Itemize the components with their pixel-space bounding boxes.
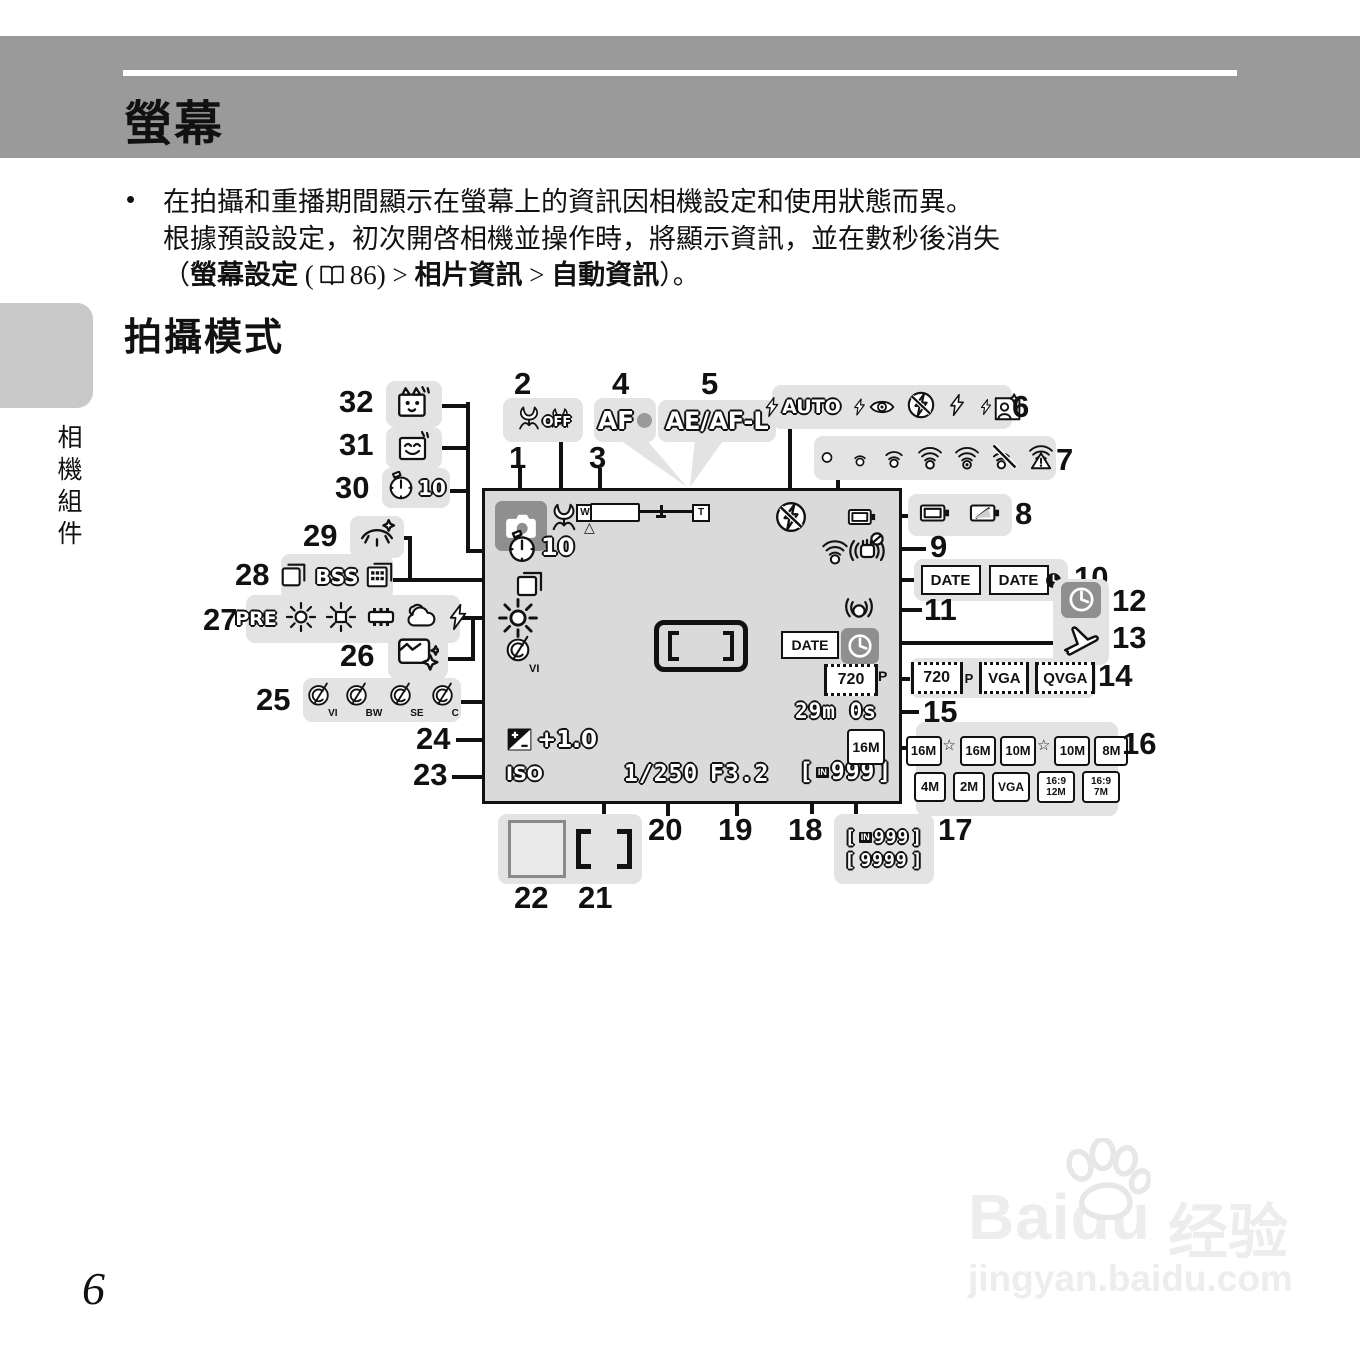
callout-28: 28 (235, 557, 269, 593)
line-30-32 (466, 402, 470, 553)
movie-qvga-icon: QVGA (1035, 662, 1095, 694)
shutter-speed-value: 1/250 (624, 761, 698, 787)
focus-area-brackets-icon (576, 829, 632, 869)
callout-3: 3 (589, 440, 606, 476)
line-32 (440, 404, 466, 408)
page-number: 6 (82, 1262, 105, 1315)
callout-5: 5 (701, 366, 718, 402)
callout-box-image-sizes: 16M☆ 16M 10M☆ 10M 8M 4M 2M VGA 16:9 12M … (916, 722, 1118, 816)
size-169-7m-icon: 16:9 7M (1082, 771, 1120, 803)
callout-21: 21 (578, 880, 612, 916)
eyefi-level1-icon (848, 442, 872, 475)
self-timer-icon (386, 471, 416, 506)
movie-vga-icon: VGA (979, 662, 1029, 694)
callout-box-clock-travel (1053, 579, 1109, 665)
zoom-indicator: W T △ (576, 503, 708, 539)
internal-memory-badge: IN (816, 767, 829, 778)
macro-on-icon (516, 402, 542, 439)
wb-preset-label: PRE (235, 608, 277, 630)
exposure-comp-screen-icon (505, 725, 534, 759)
size-16m-star-icon: 16M (906, 736, 942, 766)
blink-proof-icon (357, 518, 397, 557)
callout-23: 23 (413, 757, 447, 793)
flash-off-screen-icon (774, 500, 808, 539)
size-10m-icon: 10M (1054, 736, 1090, 766)
callout-11: 11 (924, 592, 957, 628)
callout-31: 31 (339, 427, 373, 463)
callout-pointer-triangles (596, 438, 746, 488)
callout-27: 27 (203, 602, 237, 638)
size-169-12m-icon: 16:9 12M (1037, 771, 1075, 803)
callout-box-exposure-count: [IN999] [9999] (834, 814, 934, 884)
callout-box-flash-modes: AUTO (772, 385, 1012, 429)
callout-box-continuous: BSS (281, 554, 393, 600)
zoom-triangle-marker: △ (584, 519, 595, 536)
multi-shot-16-icon (365, 560, 395, 595)
macro-off-icon: OFF (549, 405, 571, 436)
callout-14: 14 (1098, 658, 1132, 694)
callout-19: 19 (718, 812, 752, 848)
eyefi-idle-icon (815, 443, 839, 474)
style-vivid-icon: VI (305, 681, 337, 719)
callout-13: 13 (1112, 620, 1146, 656)
time-not-set-icon (1061, 582, 1101, 618)
battery-half-icon (964, 498, 1006, 533)
callout-7: 7 (1056, 442, 1073, 478)
flash-auto-icon: AUTO (762, 394, 841, 420)
wb-flash-icon (445, 602, 471, 637)
style-sepia-icon: SE (387, 681, 423, 719)
wb-fluorescent-icon (365, 601, 397, 638)
eyefi-disabled-icon (990, 441, 1018, 476)
callout-box-focus-indicator: AF (594, 398, 656, 442)
movie-option-screen-label: 720 (824, 664, 878, 696)
callout-12: 12 (1112, 583, 1146, 619)
callout-25: 25 (256, 682, 290, 718)
focus-dot-icon (637, 413, 652, 428)
motion-detection-screen-icon (842, 592, 876, 629)
eyefi-screen-icon (820, 535, 850, 570)
callout-30: 30 (335, 470, 369, 506)
callout-24: 24 (416, 721, 450, 757)
zoom-mid-tick-foot (656, 515, 666, 518)
eyefi-error-icon (1027, 441, 1055, 476)
callout-box-coolpix-style: VI BW SE C (303, 678, 461, 722)
callout-box-macro: OFF (503, 398, 583, 442)
callout-box-pet-portrait (386, 381, 442, 427)
callout-17: 17 (938, 812, 972, 848)
count-card-icon: [9999] (844, 850, 923, 871)
pet-portrait-icon (395, 385, 433, 424)
callout-box-focus-frames (498, 814, 642, 884)
shooting-mode-diagram: W T △ 10 VI +1.0 ISO 1/250 F3.2 [ IN 999… (0, 0, 1360, 1360)
watermark-domain: jingyan.baidu.com (968, 1258, 1293, 1300)
image-size-screen-label: 16M (847, 729, 885, 765)
flash-redeye-icon (851, 394, 896, 420)
line-29-v (408, 536, 412, 582)
bss-label: BSS (315, 565, 358, 589)
size-10m-star-icon: 10M (1000, 736, 1036, 766)
callout-8: 8 (1015, 496, 1032, 532)
ae-af-l-label: AE/AF-L (665, 407, 768, 435)
line-30 (448, 489, 466, 493)
flash-off-icon (906, 390, 936, 425)
zoom-tele-label: T (692, 504, 710, 522)
date-imprint-screen-label: DATE (781, 631, 839, 659)
paw-icon (1058, 1138, 1152, 1225)
callout-1: 1 (509, 440, 526, 476)
wb-incandescent-icon (325, 601, 357, 638)
callout-box-ae-af-lock: AE/AF-L (658, 400, 776, 442)
callout-2: 2 (514, 366, 531, 402)
size-16m-icon: 16M (960, 736, 996, 766)
date-clock-icon: DATE (989, 565, 1062, 595)
date-icon: DATE (921, 565, 981, 595)
exposure-comp-screen-value: +1.0 (537, 727, 597, 753)
focus-bracket-right (723, 631, 734, 661)
self-timer-screen-value: 10 (541, 533, 574, 561)
wb-daylight-icon (285, 601, 317, 638)
af-label: AF (598, 406, 634, 435)
count-internal-icon: [IN999] (845, 827, 923, 848)
callout-box-smile-timer (386, 427, 442, 469)
aperture-value: F3.2 (710, 761, 769, 787)
callout-32: 32 (339, 384, 373, 420)
style-bw-icon: BW (343, 681, 383, 719)
eyefi-level3-icon (916, 441, 944, 476)
callout-box-self-timer: 10 (382, 468, 450, 508)
image-size-row-2: 4M 2M VGA 16:9 12M 16:9 7M (914, 771, 1120, 803)
callout-box-blink-proof (350, 516, 404, 558)
time-not-set-screen-icon (841, 628, 879, 664)
callout-box-battery (908, 494, 1012, 536)
image-size-row-1: 16M☆ 16M 10M☆ 10M 8M (906, 736, 1129, 766)
battery-full-icon (914, 498, 956, 533)
size-vga-icon: VGA (992, 772, 1030, 802)
eyefi-transfer-icon (953, 441, 981, 476)
movie-option-screen-p: P (878, 668, 887, 684)
focus-area-frame (654, 620, 748, 672)
size-2m-icon: 2M (953, 772, 985, 802)
self-timer-screen-icon (505, 530, 539, 569)
face-detection-frame-icon (508, 820, 566, 878)
callout-4: 4 (612, 366, 629, 402)
travel-destination-icon (1059, 622, 1103, 663)
callout-20: 20 (648, 812, 682, 848)
smile-timer-icon (396, 430, 432, 467)
callout-box-eyefi (814, 436, 1056, 480)
callout-29: 29 (303, 518, 337, 554)
callout-26: 26 (340, 638, 374, 674)
line-31 (440, 446, 466, 450)
movie-720p-icon: 720P (911, 662, 974, 694)
style-cyanotype-icon: C (429, 681, 459, 719)
callout-22: 22 (514, 880, 548, 916)
continuous-icon (279, 560, 309, 595)
line-26-v (471, 618, 475, 661)
zoom-position-marker (590, 503, 640, 522)
iso-screen-label: ISO (506, 763, 543, 785)
callout-6: 6 (1012, 389, 1029, 425)
quick-effects-icon (397, 635, 439, 678)
callout-18: 18 (788, 812, 822, 848)
wb-cloudy-icon (405, 602, 437, 637)
line-13 (879, 641, 1055, 645)
flash-fill-icon (946, 391, 968, 424)
coolpix-style-screen-icon: VI (503, 634, 539, 675)
focus-bracket-left (668, 631, 679, 661)
eyefi-level2-icon (881, 441, 907, 476)
callout-box-movie-options: 720P VGA QVGA (910, 658, 1096, 698)
callout-16: 16 (1122, 726, 1156, 762)
callout-box-quick-effects (388, 633, 448, 679)
movie-remaining-time: 29m 0s (795, 699, 877, 723)
vibration-reduction-screen-icon (849, 532, 885, 571)
size-4m-icon: 4M (914, 772, 946, 802)
